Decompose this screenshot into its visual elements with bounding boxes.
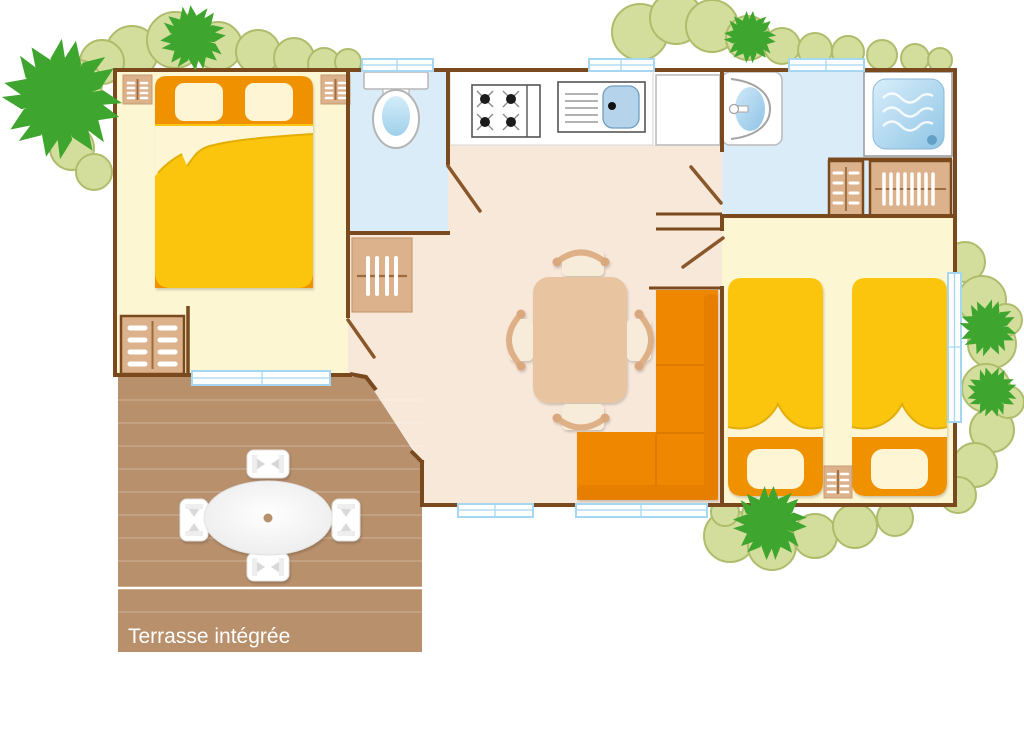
washbasin-icon [722,72,782,145]
bush-icon [704,497,913,570]
window [576,504,707,517]
window [458,504,533,517]
floor-plan-canvas: Terrasse intégrée [0,0,1024,751]
pillow [175,83,223,121]
window [789,59,864,71]
floor-plan: Terrasse intégrée [0,0,1024,751]
single-bed [852,278,947,496]
nightstand [123,75,152,104]
wardrobe [121,316,184,374]
terrace-label: Terrasse intégrée [128,625,290,648]
pillow [747,449,804,489]
wardrobe [870,161,951,216]
wardrobe [829,161,863,216]
terrace-chair [247,553,289,581]
window [948,273,961,422]
stove-icon [472,85,540,137]
shower-icon [864,72,952,156]
terrace: Terrasse intégrée [118,377,422,652]
terrace-table-hole [264,514,273,523]
dining-table [533,277,627,403]
terrace-chair [332,499,360,541]
single-bed [728,278,823,496]
wardrobe [352,238,412,312]
terrace-chair [247,450,289,478]
double-bed [155,76,313,288]
window [362,59,433,71]
pillow [245,83,293,121]
bush-icon [612,0,952,72]
kitchen-sink-icon [558,82,645,132]
sliding-door [192,371,330,385]
kitchen-cabinet [656,75,720,145]
window [589,59,654,71]
kitchen [450,70,720,145]
pillow [871,449,928,489]
nightstand [321,75,350,104]
nightstand [824,466,852,498]
